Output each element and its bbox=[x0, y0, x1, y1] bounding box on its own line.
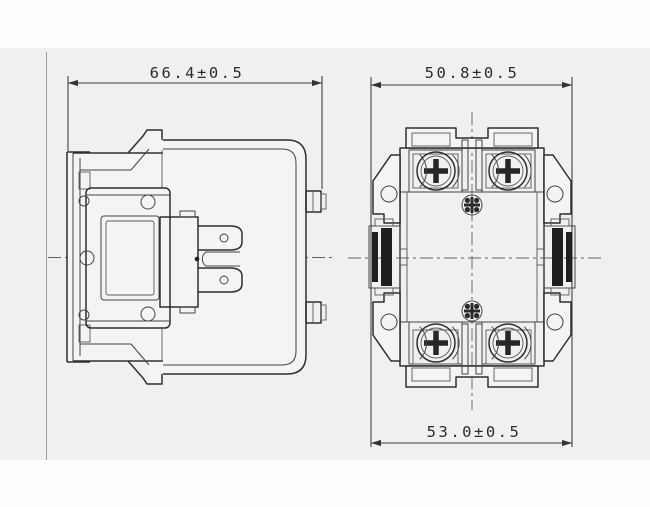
dimension-label: 66.4±0.5 bbox=[150, 64, 245, 82]
technical-drawing-sheet: 66.4±0.5 bbox=[0, 0, 650, 507]
assembly-screw-icon bbox=[462, 195, 482, 215]
case-silhouette bbox=[67, 130, 306, 384]
dimension-label: 50.8±0.5 bbox=[425, 64, 520, 82]
dimension-label: 53.0±0.5 bbox=[427, 423, 522, 441]
assembly-screw-icon bbox=[462, 301, 482, 321]
contactor-two-view-drawing: 66.4±0.5 bbox=[0, 0, 650, 507]
